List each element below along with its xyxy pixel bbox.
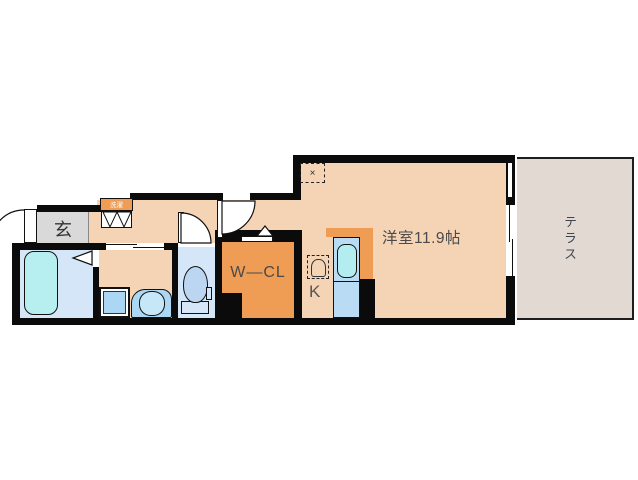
wall-main-top (293, 155, 515, 163)
sliding-door-pane-2 (133, 247, 164, 248)
wall-wcl-step (215, 293, 242, 325)
folding-door-icon (241, 236, 273, 242)
hall-door-notch (223, 193, 250, 200)
wall-hall-top (130, 193, 293, 200)
entrance-label: 玄 (54, 216, 72, 242)
main-door-leaf (217, 200, 223, 238)
wall-left (12, 243, 20, 325)
laundry-bifold-door-icon (101, 211, 132, 228)
sliding-door-pane-1 (106, 244, 137, 245)
floorplan-canvas: 洗濯 × 洋室11.9帖 テラス W―CL K 玄 (0, 0, 638, 480)
wall-bottom (12, 318, 515, 325)
ceiling-light-icon: × (300, 163, 325, 183)
refrigerator-outline (311, 259, 326, 277)
washing-machine-pan-icon (99, 287, 130, 318)
terrace-sliding-door-icon (506, 205, 515, 276)
main-room-label: 洋室11.9帖 (382, 226, 461, 248)
refrigerator-space-icon (307, 255, 329, 279)
kitchen-sink-unit (333, 237, 360, 318)
wcl-label: W―CL (224, 264, 292, 282)
terrace-slider-pane-2 (512, 239, 513, 276)
ceiling-light-mark: × (301, 164, 324, 183)
entrance-door-swing-icon (0, 210, 24, 243)
entrance-door-leaf (24, 209, 37, 243)
wall-kitchen-stub (360, 279, 375, 325)
kitchen-unit-divider (334, 281, 359, 282)
terrace-label: テラス (563, 215, 576, 263)
hallway-step-patch (89, 212, 101, 243)
terrace-slider-pane-1 (509, 205, 510, 242)
toilet-door-leaf (178, 212, 184, 243)
wall-main-west-lower (294, 230, 302, 318)
kitchen-counter-side (360, 237, 373, 281)
toilet-flush-unit (206, 287, 212, 300)
laundry-storage-box: 洗濯 (100, 198, 133, 211)
toilet-icon (183, 266, 208, 303)
wall-entrance-top (37, 205, 103, 212)
window-icon (508, 163, 512, 197)
kitchen-label: K (309, 282, 320, 302)
washbasin-bowl (139, 291, 165, 316)
bath-door-gap (93, 250, 99, 267)
bathtub-icon (24, 251, 58, 315)
kitchen-sink-icon (337, 244, 357, 278)
wall-toilet-left (172, 243, 178, 325)
washing-machine-pan-inner (103, 291, 126, 314)
kitchen-counter-top (326, 228, 373, 237)
